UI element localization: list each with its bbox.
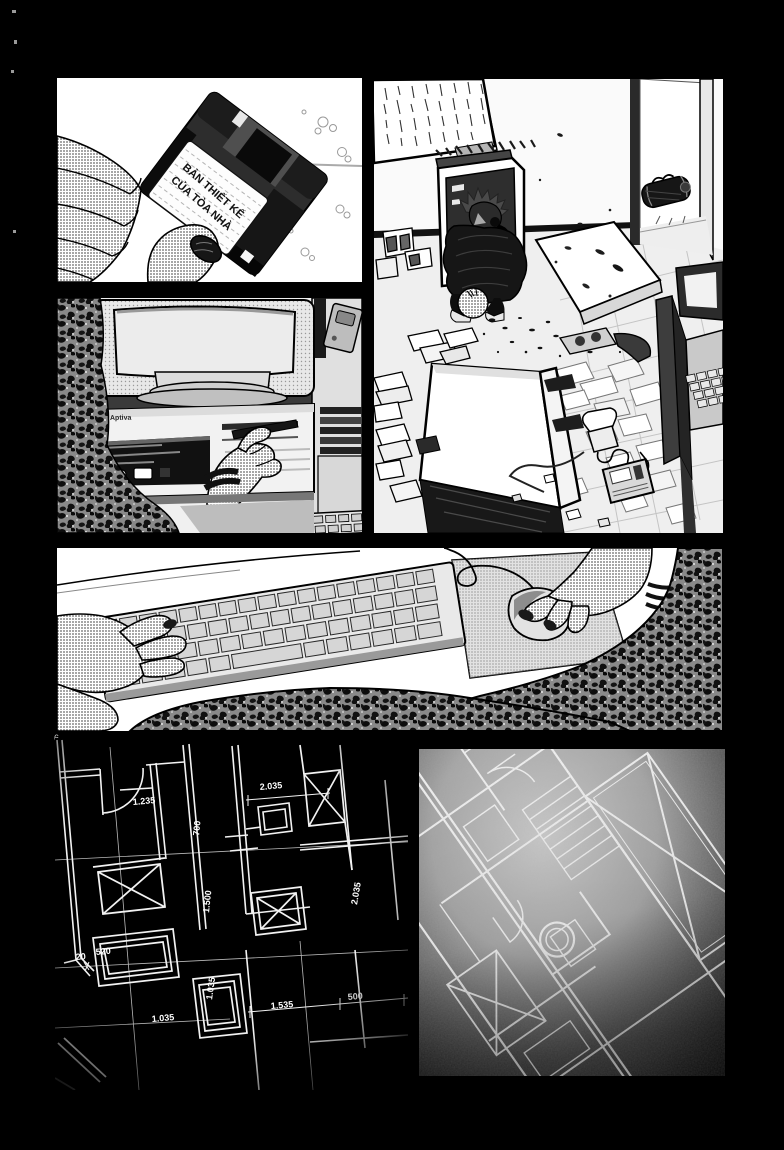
svg-text:Aptiva: Aptiva — [110, 415, 132, 422]
